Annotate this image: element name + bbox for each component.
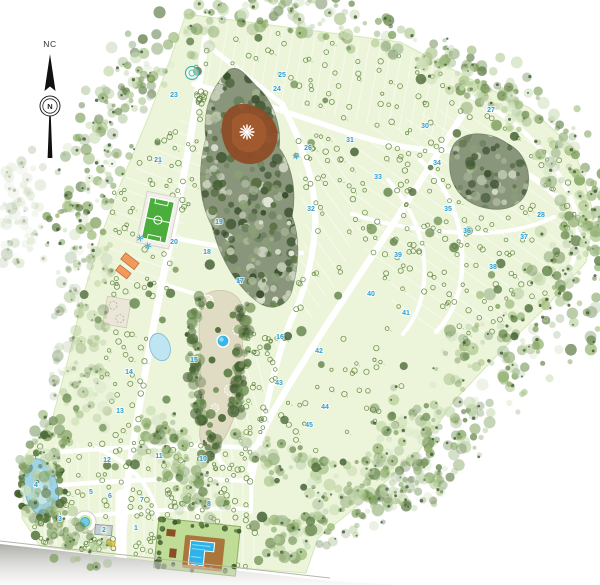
zone-label-11: 11 xyxy=(155,453,163,460)
zone-label-33: 33 xyxy=(374,174,382,181)
compass-nc-label: NC xyxy=(43,39,56,49)
zone-label-14: 14 xyxy=(125,369,133,376)
zone-label-8: 8 xyxy=(207,501,211,508)
zone-label-23: 23 xyxy=(170,92,178,99)
zone-label-35: 35 xyxy=(444,206,452,213)
zone-label-13: 13 xyxy=(116,408,124,415)
heritage-tree-icon xyxy=(186,67,199,80)
zone-label-34: 34 xyxy=(433,160,441,167)
compass-north-arrow: NC N xyxy=(40,39,60,158)
zone-label-27: 27 xyxy=(487,107,495,114)
compass-tail xyxy=(48,117,53,159)
zone-label-30: 30 xyxy=(421,123,429,130)
zone-label-24: 24 xyxy=(273,86,281,93)
zone-label-4: 4 xyxy=(34,482,38,489)
zone-label-41: 41 xyxy=(402,310,410,317)
zone-label-16: 16 xyxy=(276,334,284,341)
zone-label-10: 10 xyxy=(199,456,207,463)
zone-label-31: 31 xyxy=(346,137,354,144)
zone-label-43: 43 xyxy=(275,380,283,387)
zone-label-12: 12 xyxy=(103,457,111,464)
north-arrow-icon xyxy=(45,54,56,91)
masterplan-canvas: 1234567810111213141516171819202123242526… xyxy=(0,0,600,585)
site-plan-svg: 1234567810111213141516171819202123242526… xyxy=(0,0,600,585)
zone-label-19: 19 xyxy=(215,219,223,226)
zone-label-7: 7 xyxy=(140,497,144,504)
zone-label-5: 5 xyxy=(89,489,93,496)
zone-label-36: 36 xyxy=(463,228,471,235)
compass-n-letter: N xyxy=(47,102,52,111)
zone-label-25: 25 xyxy=(278,72,286,79)
zone-label-39: 39 xyxy=(394,252,402,259)
zone-label-40: 40 xyxy=(367,291,375,298)
zone-label-20: 20 xyxy=(170,239,178,246)
zone-label-45: 45 xyxy=(305,422,313,429)
zone-label-2: 2 xyxy=(102,527,106,534)
zone-label-38: 38 xyxy=(489,264,497,271)
zone-label-42: 42 xyxy=(315,348,323,355)
zone-label-37: 37 xyxy=(520,234,528,241)
zone-label-21: 21 xyxy=(154,157,162,164)
zone-label-15: 15 xyxy=(190,357,198,364)
zone-label-3: 3 xyxy=(58,516,62,523)
zone-label-1: 1 xyxy=(134,525,138,532)
zone-label-32: 32 xyxy=(307,206,315,213)
zone-label-44: 44 xyxy=(321,404,329,411)
zone-label-6: 6 xyxy=(108,493,112,500)
zone-label-28: 28 xyxy=(537,212,545,219)
zone-label-26: 26 xyxy=(304,145,312,152)
zone-label-17: 17 xyxy=(236,278,244,285)
zone-label-18: 18 xyxy=(203,249,211,256)
